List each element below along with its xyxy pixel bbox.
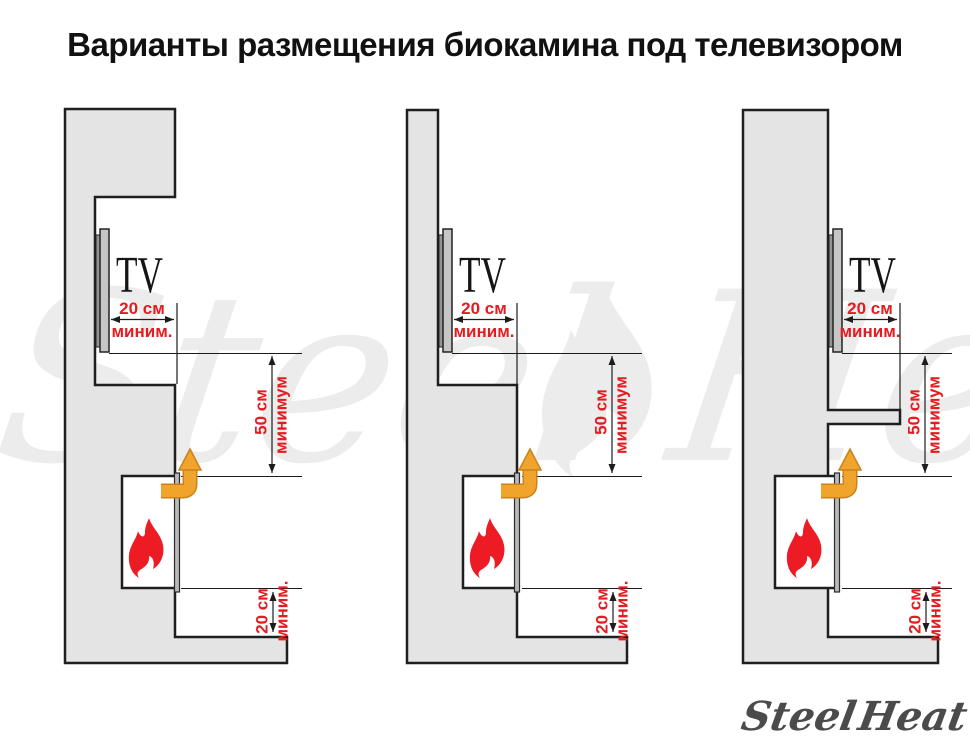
top-clearance-qualifier: минимум (925, 376, 944, 454)
tv-label: TV (116, 247, 163, 304)
front-clearance-qualifier: миним. (111, 322, 172, 341)
front-clearance-qualifier: миним. (839, 322, 900, 341)
bottom-clearance-qualifier: миним. (613, 580, 632, 641)
front-clearance-value: 20 см (847, 299, 893, 318)
bottom-clearance-qualifier: миним. (926, 580, 945, 641)
bottom-clearance-dimension: 20 см миним. (181, 580, 302, 641)
brand-logo: Steel Heat (742, 688, 962, 746)
top-clearance-qualifier: минимум (612, 376, 631, 454)
top-clearance-qualifier: минимум (272, 376, 291, 454)
tv-label: TV (459, 247, 506, 304)
tv-panel (443, 229, 452, 352)
bottom-clearance-value: 20 см (593, 588, 612, 634)
front-clearance-value: 20 см (461, 299, 507, 318)
tv-panel (100, 229, 109, 352)
logo-heat-text: Heat (856, 697, 970, 737)
bottom-clearance-dimension: 20 см миним. (522, 580, 642, 641)
page-title: Варианты размещения биокамина под телеви… (0, 26, 970, 64)
front-clearance-qualifier: миним. (453, 322, 514, 341)
infographic-canvas: Steel Heat Варианты размещения биокамина… (0, 0, 970, 749)
top-clearance-value: 50 см (592, 389, 611, 435)
bottom-clearance-qualifier: миним. (273, 580, 292, 641)
bottom-clearance-dimension: 20 см миним. (842, 580, 952, 641)
diagram-protruding-base: TV 20 см миним. 50 см минимум (407, 110, 642, 663)
diagram-wall-shelf: TV 20 см миним. 50 см минимум (743, 110, 952, 663)
bottom-clearance-value: 20 см (253, 588, 272, 634)
wall-profile (743, 110, 938, 663)
diagram-niche-mount: TV 20 см миним. 50 см минимум (65, 109, 302, 663)
front-clearance-value: 20 см (119, 299, 165, 318)
diagram-canvas: TV 20 см миним. 50 см минимум (0, 0, 970, 749)
bottom-clearance-value: 20 см (906, 588, 925, 634)
front-clearance-dimension: 20 см миним. (111, 299, 177, 384)
top-clearance-value: 50 см (905, 389, 924, 435)
top-clearance-dimension: 50 см минимум (181, 356, 302, 477)
tv-label: TV (849, 247, 896, 304)
top-clearance-value: 50 см (252, 389, 271, 435)
top-clearance-dimension: 50 см минимум (522, 356, 642, 477)
front-clearance-dimension: 20 см миним. (453, 299, 517, 384)
logo-steel-text: Steel (738, 697, 859, 737)
